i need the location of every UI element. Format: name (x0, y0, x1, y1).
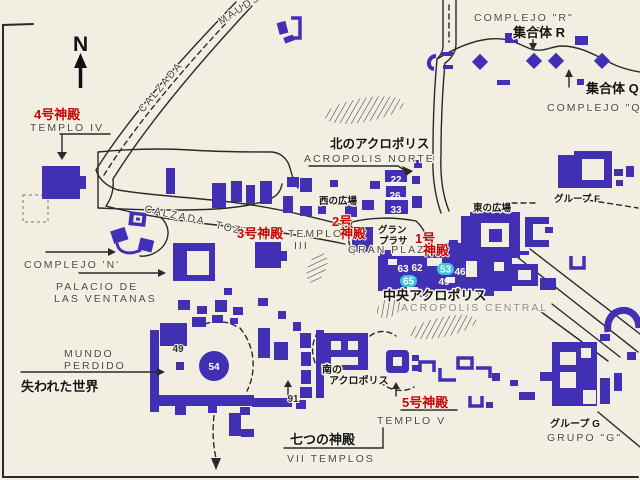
acropolis-central-label: ACROPOLIS CENTRAL (401, 302, 548, 314)
structure-49-mundo-number: 49 (172, 344, 184, 355)
templo-v-label: TEMPLO V (377, 415, 446, 427)
temple5-jp-label: 5号神殿 (402, 395, 449, 410)
group-g-label: グループ G (550, 417, 600, 430)
vii-templos-label: VII TEMPLOS (287, 453, 375, 465)
templo-iii-label1: TEMPLO (288, 228, 343, 240)
temple3-structure (255, 242, 287, 268)
structure-53-number: 53 (440, 265, 452, 276)
group-g-structures (552, 342, 636, 406)
temple2-jp-label2: 神殿 (340, 226, 367, 241)
mundo-label: MUNDO (64, 348, 114, 360)
maudslay-name-label: MAUDSLAY (216, 0, 284, 28)
perdido-label: PERDIDO (64, 360, 126, 372)
north-structure (277, 18, 300, 44)
grupo-g-label: GRUPO "G" (547, 432, 622, 444)
complex-r-boundary (437, 39, 640, 72)
structure-91-number: 91 (287, 394, 299, 405)
structure-46-number: 46 (454, 267, 466, 278)
temple3-jp-label: 3号神殿 (237, 226, 284, 241)
structure-54-number: 54 (208, 362, 220, 373)
temple4-structure (42, 166, 86, 199)
west-cluster-structures (166, 168, 338, 208)
structure-49-number: 49 (438, 277, 450, 288)
palacio-label1: PALACIO DE (56, 281, 138, 293)
lost-world-jp-label: 失われた世界 (21, 379, 98, 394)
south-acropolis-jp-label2: アクロポリス (329, 374, 389, 387)
place-labels: MUNDO PERDIDO 失われた世界 PALACIO DE LAS VENT… (21, 281, 157, 394)
group-f-structures (558, 151, 639, 341)
templo-iii-label2: III (294, 240, 309, 252)
east-plaza-label: 東の広場 (472, 202, 512, 214)
shugotai-r-label: 集合体 R (512, 25, 566, 40)
tikal-site-map: N CALZADA MAUDSLAY CALZADA TOZZER COMPLE… (0, 0, 640, 480)
temple4-leader (60, 134, 110, 153)
seven-temples-structures (296, 330, 324, 409)
temple4-jp-label: 4号神殿 (34, 107, 81, 122)
north-acropolis-jp-label: 北のアクロポリス (330, 136, 429, 151)
templo-iv-label: TEMPLO IV (30, 122, 104, 134)
calzada-maler-road (433, 0, 456, 213)
compass-n-label: N (73, 33, 88, 56)
south-acropolis-jp-label1: 南の (322, 363, 342, 376)
group-f-label: グループ F (554, 193, 600, 205)
palacio-label2: LAS VENTANAS (54, 293, 157, 305)
structure-22-number: 22 (390, 175, 402, 186)
seven-temples-jp-label: 七つの神殿 (290, 432, 356, 447)
complejo-q-label: COMPLEJO "Q" (547, 102, 640, 114)
map-canvas: N CALZADA MAUDSLAY CALZADA TOZZER COMPLE… (0, 0, 640, 480)
complejo-r-label: COMPLEJO "R" (474, 12, 574, 24)
structure-65-number: 65 (403, 277, 415, 288)
shugotai-q-label: 集合体 Q (585, 81, 639, 96)
complejo-n-label: COMPLEJO 'N' (24, 259, 120, 271)
acropolis-norte-label: ACROPOLIS NORTE (304, 153, 435, 165)
structure-26-number: 26 (389, 191, 401, 202)
central-acropolis-jp-label: 中央アクロポリス (383, 288, 486, 303)
structure-33-number: 33 (390, 205, 402, 216)
calzada-tozzer-label: CALZADA (143, 203, 207, 228)
gran-plaza-jp-label1: グラン (378, 224, 407, 236)
structure-62-number: 62 (411, 263, 423, 274)
mundo-perdido-structures (150, 315, 292, 437)
west-plaza-label: 西の広場 (319, 195, 358, 207)
map-frame (3, 24, 638, 477)
temple1-jp-label2: 神殿 (423, 243, 450, 258)
structure-63-number: 63 (397, 264, 409, 275)
calzada-maudslay-label: CALZADA (136, 59, 185, 115)
compass: N (73, 33, 88, 88)
